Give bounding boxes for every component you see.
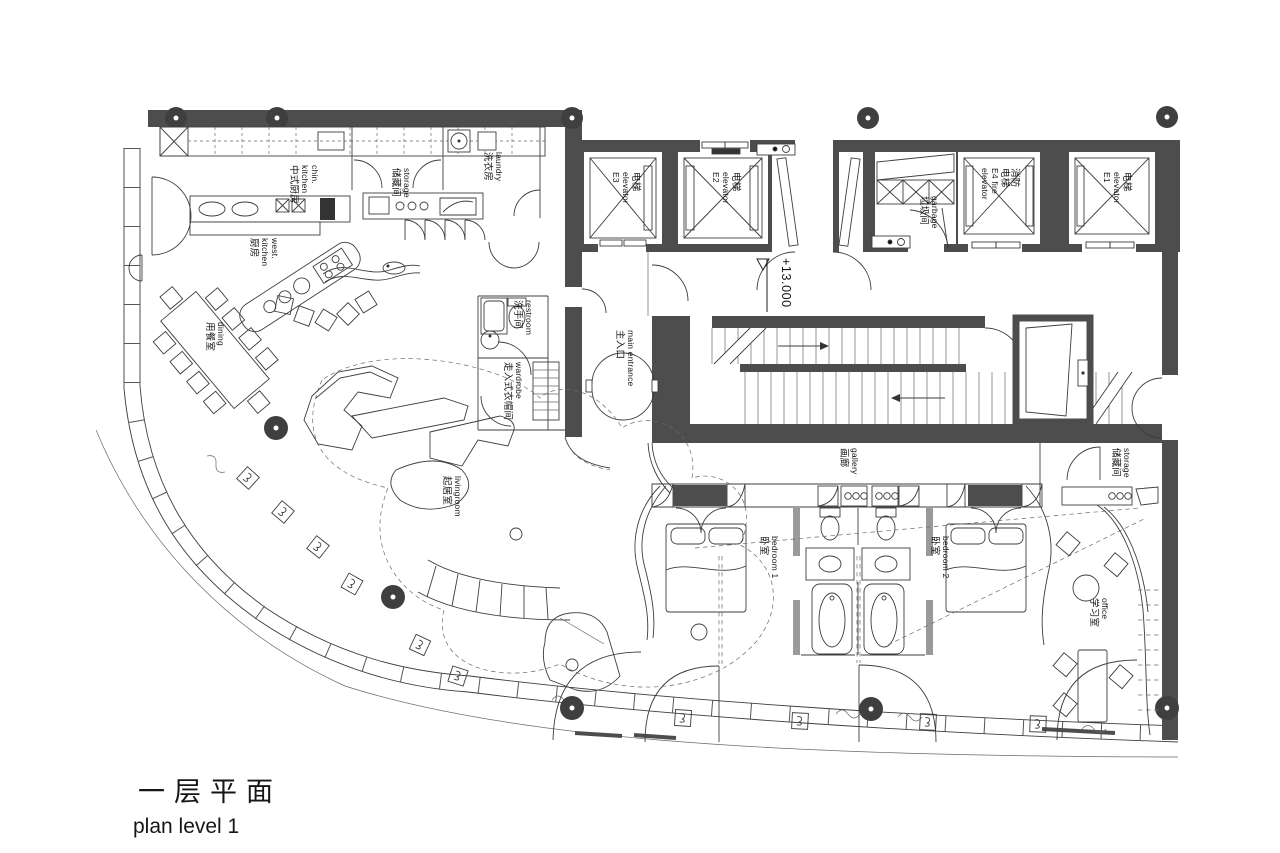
level-marker-text: +13.000	[779, 258, 793, 308]
floor-plan-drawing: +13.000	[0, 0, 1280, 853]
floor-plan-page: +13.000	[0, 0, 1280, 853]
plan-title-en: plan level 1	[133, 815, 239, 838]
label-west-kitchen: west.kitchen厨房	[248, 237, 280, 266]
plan-title-zh: 一层平面	[138, 777, 282, 807]
main-staircase	[712, 318, 1162, 438]
label-main-entrance: main entrance主入口	[614, 330, 636, 387]
label-wardrobe: wardrobe走入式衣帽间	[502, 361, 524, 420]
label-storage-right: storage储藏间	[1110, 448, 1132, 478]
level-marker: +13.000	[757, 258, 793, 312]
label-garbage: garbage垃圾间	[918, 196, 940, 229]
label-bedroom2: bedroom 2卧室	[929, 536, 951, 579]
facade-fitting-symbols	[237, 467, 1047, 733]
label-dining: dining用餐室	[204, 322, 226, 351]
title-block: 一层平面 plan level 1	[133, 777, 282, 838]
bedroom-wing	[635, 484, 1146, 742]
label-office: office学习室	[1088, 598, 1110, 627]
label-bedroom1: bedroom 1卧室	[758, 536, 780, 579]
label-restroom: restroom洗手间	[512, 300, 534, 335]
entrance-door-symbol	[586, 353, 658, 420]
label-gallery: gallery画廊	[838, 448, 860, 475]
label-storage-top: storage储藏间	[390, 168, 412, 198]
livingroom-furniture	[304, 359, 773, 740]
label-livingroom: livingroom起居室	[441, 476, 463, 517]
label-laundry: laundry洗衣房	[482, 152, 504, 182]
office-wing	[1040, 443, 1162, 735]
